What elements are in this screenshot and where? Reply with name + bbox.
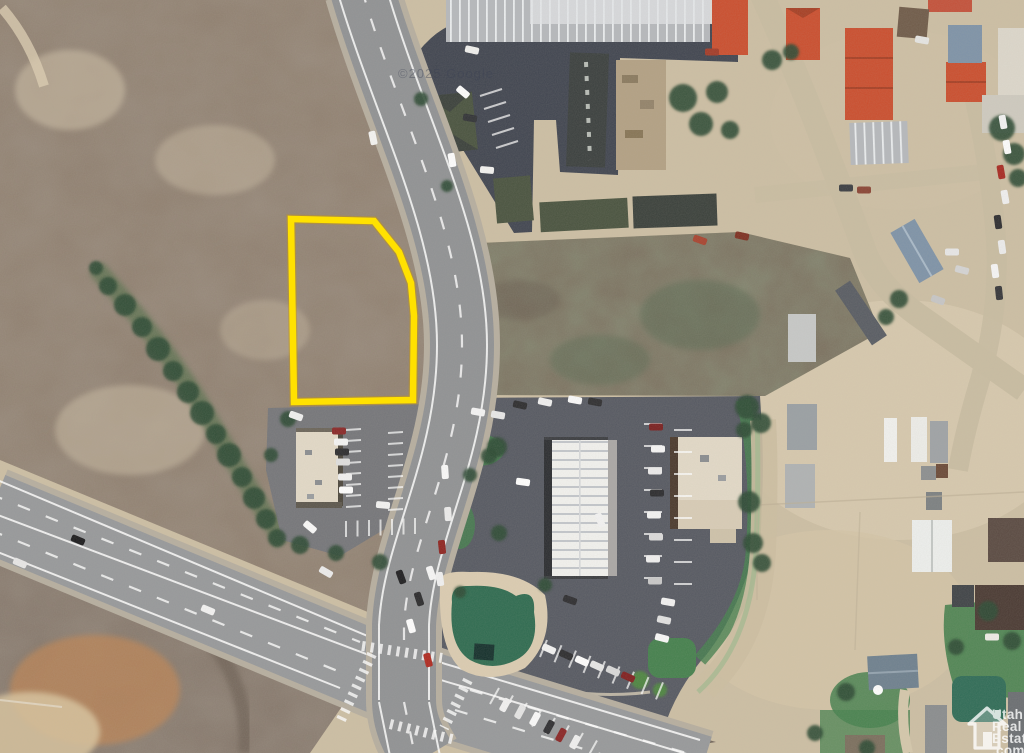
photo-noise-overlay bbox=[0, 0, 1024, 753]
google-watermark: ©2025 Google bbox=[398, 66, 494, 81]
satellite-map-photo: ©2025 Google Utah Real Estate .com bbox=[0, 0, 1024, 753]
